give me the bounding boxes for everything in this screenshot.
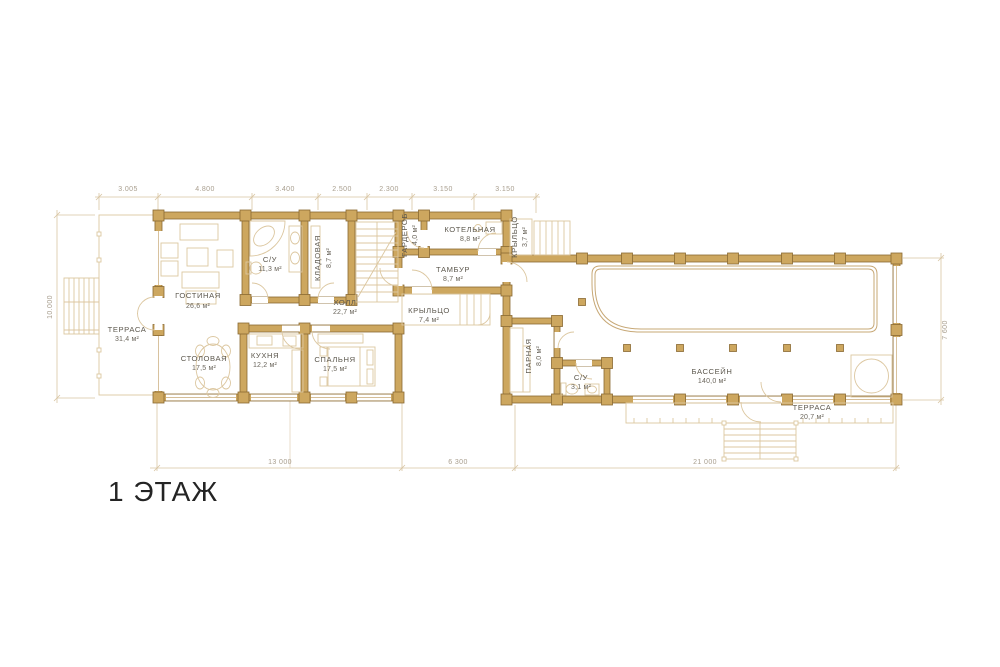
room-area-bedroom: 17,5 м² bbox=[323, 366, 348, 373]
hall-staircase bbox=[356, 222, 398, 302]
dim-left: 10.000 bbox=[47, 295, 54, 319]
room-label-steam: ПАРНАЯ bbox=[524, 338, 533, 373]
room-label-dining: СТОЛОВАЯ bbox=[181, 354, 227, 363]
dimension-bottom: 13 000 6 300 21 000 bbox=[150, 401, 900, 471]
room-area-wardrobe: 4,0 м² bbox=[412, 225, 419, 245]
dim-top-2: 4.800 bbox=[195, 186, 215, 193]
room-area-storage: 8,7 м² bbox=[326, 248, 333, 268]
dimension-bottom-ticks bbox=[154, 401, 899, 471]
room-label-wardrobe: ГАРДЕРОБ bbox=[400, 213, 409, 257]
room-area-dining: 17,5 м² bbox=[192, 365, 217, 372]
dimension-right: 7 600 bbox=[903, 253, 949, 405]
room-label-boiler: КОТЕЛЬНАЯ bbox=[444, 225, 495, 234]
hot-tub bbox=[851, 355, 892, 397]
dimension-top: 3.005 4.800 3.400 2.500 2.300 3.150 3.15… bbox=[95, 186, 540, 213]
room-label-porch-small: КРЫЛЬЦО bbox=[510, 216, 519, 258]
floor-plan-drawing: 3.005 4.800 3.400 2.500 2.300 3.150 3.15… bbox=[0, 0, 1000, 667]
room-area-boiler: 8,8 м² bbox=[460, 236, 480, 243]
dimension-left: 10.000 bbox=[47, 210, 95, 403]
dim-top-6: 3.150 bbox=[433, 186, 453, 193]
room-label-porch-main: КРЫЛЬЦО bbox=[408, 306, 450, 315]
terrace-right-structure bbox=[626, 403, 893, 461]
room-label-storage: КЛАДОВАЯ bbox=[313, 235, 322, 281]
room-label-kitchen: КУХНЯ bbox=[251, 351, 279, 360]
floor-plan-page: 3.005 4.800 3.400 2.500 2.300 3.150 3.15… bbox=[0, 0, 1000, 667]
room-label-pool: БАССЕЙН bbox=[692, 367, 733, 376]
room-area-bathroom-main: 11,3 м² bbox=[258, 266, 282, 273]
room-area-hall: 22,7 м² bbox=[333, 309, 358, 316]
dim-top-5: 2.300 bbox=[379, 186, 399, 193]
swimming-pool bbox=[592, 266, 877, 332]
room-area-terrace-left: 31,4 м² bbox=[115, 336, 140, 343]
dim-top-3: 3.400 bbox=[275, 186, 295, 193]
dim-bottom-1: 13 000 bbox=[268, 459, 292, 466]
floor-title: 1 ЭТАЖ bbox=[108, 476, 218, 507]
dim-top-4: 2.500 bbox=[332, 186, 352, 193]
room-label-bathroom-pool: С/У bbox=[574, 373, 588, 382]
dim-top-7: 3.150 bbox=[495, 186, 515, 193]
dim-right: 7 600 bbox=[942, 320, 949, 340]
room-area-vestibule: 8,7 м² bbox=[443, 276, 463, 283]
terrace-left-stairs bbox=[64, 278, 99, 334]
room-area-kitchen: 12,2 м² bbox=[253, 362, 278, 369]
room-area-steam: 8,0 м² bbox=[536, 346, 543, 366]
terrace-right-stairs bbox=[722, 421, 798, 461]
dim-top-1: 3.005 bbox=[118, 186, 138, 193]
room-label-living: ГОСТИНАЯ bbox=[175, 291, 221, 300]
dim-bottom-3: 21 000 bbox=[693, 459, 717, 466]
room-label-bathroom-main: С/У bbox=[263, 255, 277, 264]
dimension-right-ticks bbox=[903, 255, 944, 403]
room-label-hall: ХОЛЛ bbox=[333, 298, 356, 307]
terrace-left-structure bbox=[64, 215, 155, 395]
room-area-terrace-right: 20,7 м² bbox=[800, 414, 825, 421]
room-area-porch-main: 7,4 м² bbox=[419, 317, 439, 324]
room-area-bathroom-pool: 3,1 м² bbox=[571, 384, 591, 391]
porch-small-stairs bbox=[510, 219, 570, 255]
dim-bottom-2: 6 300 bbox=[448, 459, 468, 466]
room-area-pool: 140,0 м² bbox=[698, 378, 727, 385]
room-area-porch-small: 3,7 м² bbox=[522, 227, 529, 247]
room-label-bedroom: СПАЛЬНЯ bbox=[314, 355, 355, 364]
room-label-terrace-left: ТЕРРАСА bbox=[108, 325, 147, 334]
room-label-vestibule: ТАМБУР bbox=[436, 265, 470, 274]
room-label-terrace-right: ТЕРРАСА bbox=[793, 403, 832, 412]
room-area-living: 26,6 м² bbox=[186, 303, 211, 310]
